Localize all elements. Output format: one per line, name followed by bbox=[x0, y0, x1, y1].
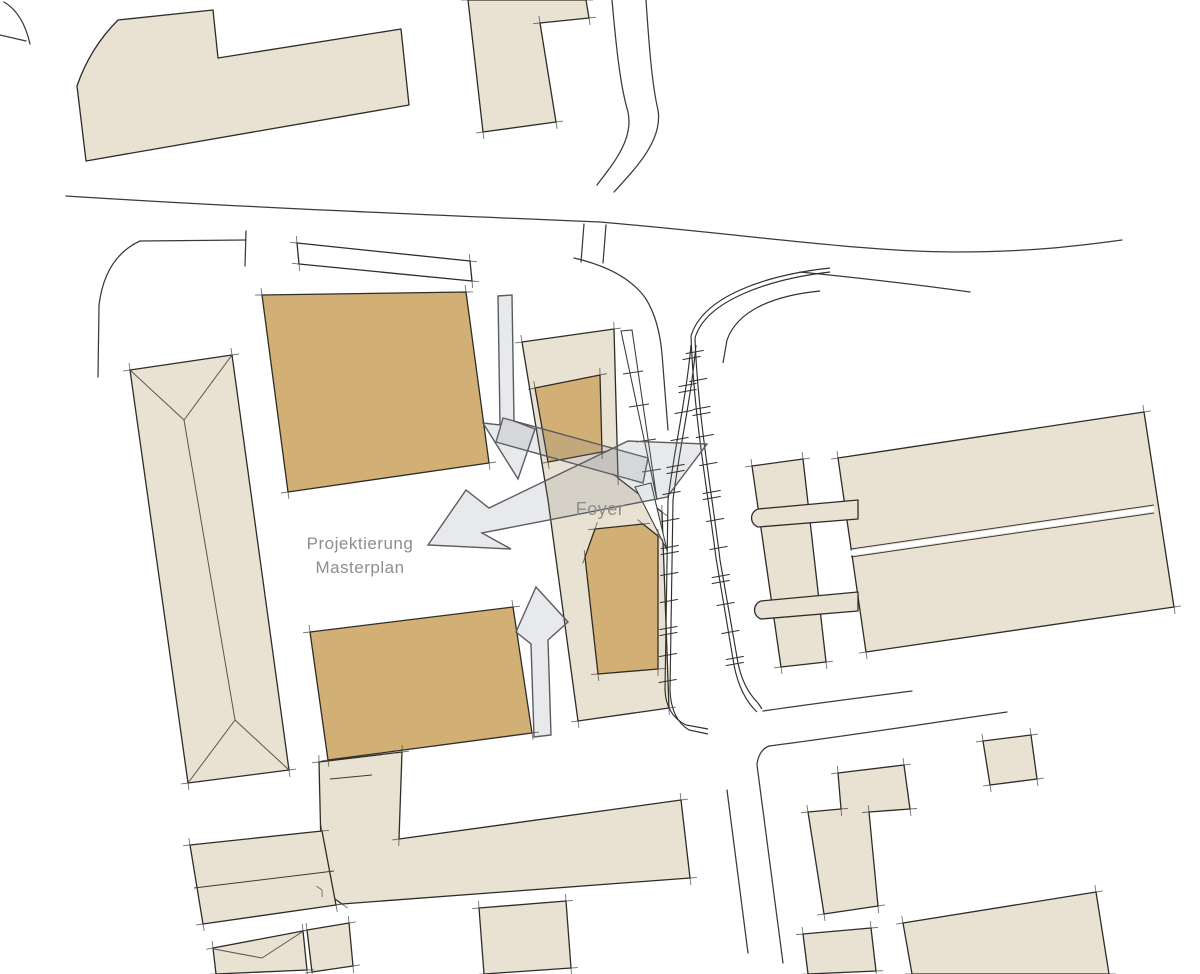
label-foyer: Foyer bbox=[576, 499, 625, 519]
flow-arrow-down bbox=[483, 295, 535, 479]
road-south-left-edge bbox=[727, 790, 748, 953]
project-building-north bbox=[262, 292, 489, 492]
footpath-wavy-2 bbox=[614, 0, 659, 192]
short-stroke-topleft bbox=[0, 35, 26, 41]
crosswalk-mark-2 bbox=[603, 225, 606, 263]
building-southeast-l-shape bbox=[808, 765, 910, 914]
corner-arc-topleft bbox=[4, 2, 30, 44]
building-topleft-existing bbox=[77, 10, 409, 161]
label-projektierung-line1: Projektierung bbox=[307, 534, 414, 553]
track-a-rail-1 bbox=[665, 345, 708, 729]
building-south-small-rect bbox=[803, 928, 876, 974]
project-building-south bbox=[310, 607, 532, 760]
building-bottom-left-bar bbox=[190, 831, 336, 924]
track-inner-curve bbox=[723, 291, 820, 363]
road-stub-right bbox=[800, 272, 970, 292]
label-projektierung-line2: Masterplan bbox=[315, 558, 404, 577]
building-bottom-square bbox=[479, 901, 571, 974]
building-bottom-narrow-bar bbox=[307, 923, 353, 972]
street-curve-left bbox=[98, 241, 140, 377]
building-top-vertical bbox=[468, 0, 589, 132]
footpath-wavy-1 bbox=[597, 0, 629, 185]
project-building-foyer-south bbox=[585, 524, 658, 674]
road-corner-small bbox=[757, 746, 769, 764]
platform-outline bbox=[297, 243, 472, 281]
track-a-rail-2 bbox=[670, 345, 708, 734]
building-east-strip bbox=[752, 459, 826, 667]
main-road bbox=[66, 196, 1122, 252]
building-southeast-large bbox=[903, 892, 1109, 974]
site-plan-canvas: Projektierung Masterplan Foyer bbox=[0, 0, 1200, 974]
masterplan-sketch: Projektierung Masterplan Foyer bbox=[0, 0, 1200, 974]
road-east-2 bbox=[769, 712, 1007, 746]
street-corner-left-tick bbox=[245, 231, 246, 266]
road-east-1 bbox=[763, 691, 912, 711]
building-bottom-complex bbox=[319, 752, 690, 904]
crosswalk-mark-1 bbox=[581, 224, 584, 262]
street-corner-left bbox=[140, 240, 246, 241]
road-south-right-edge bbox=[757, 765, 783, 963]
building-southeast-small-square bbox=[983, 735, 1037, 785]
